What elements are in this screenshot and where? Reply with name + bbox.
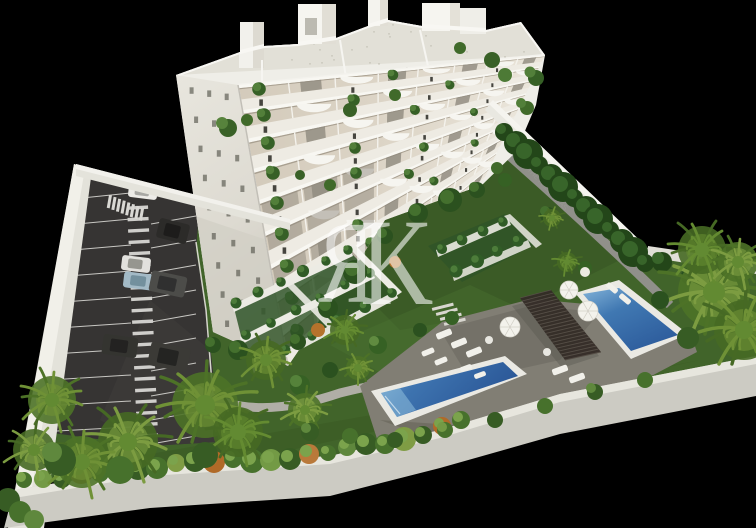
svg-text:K: K [360, 194, 433, 332]
